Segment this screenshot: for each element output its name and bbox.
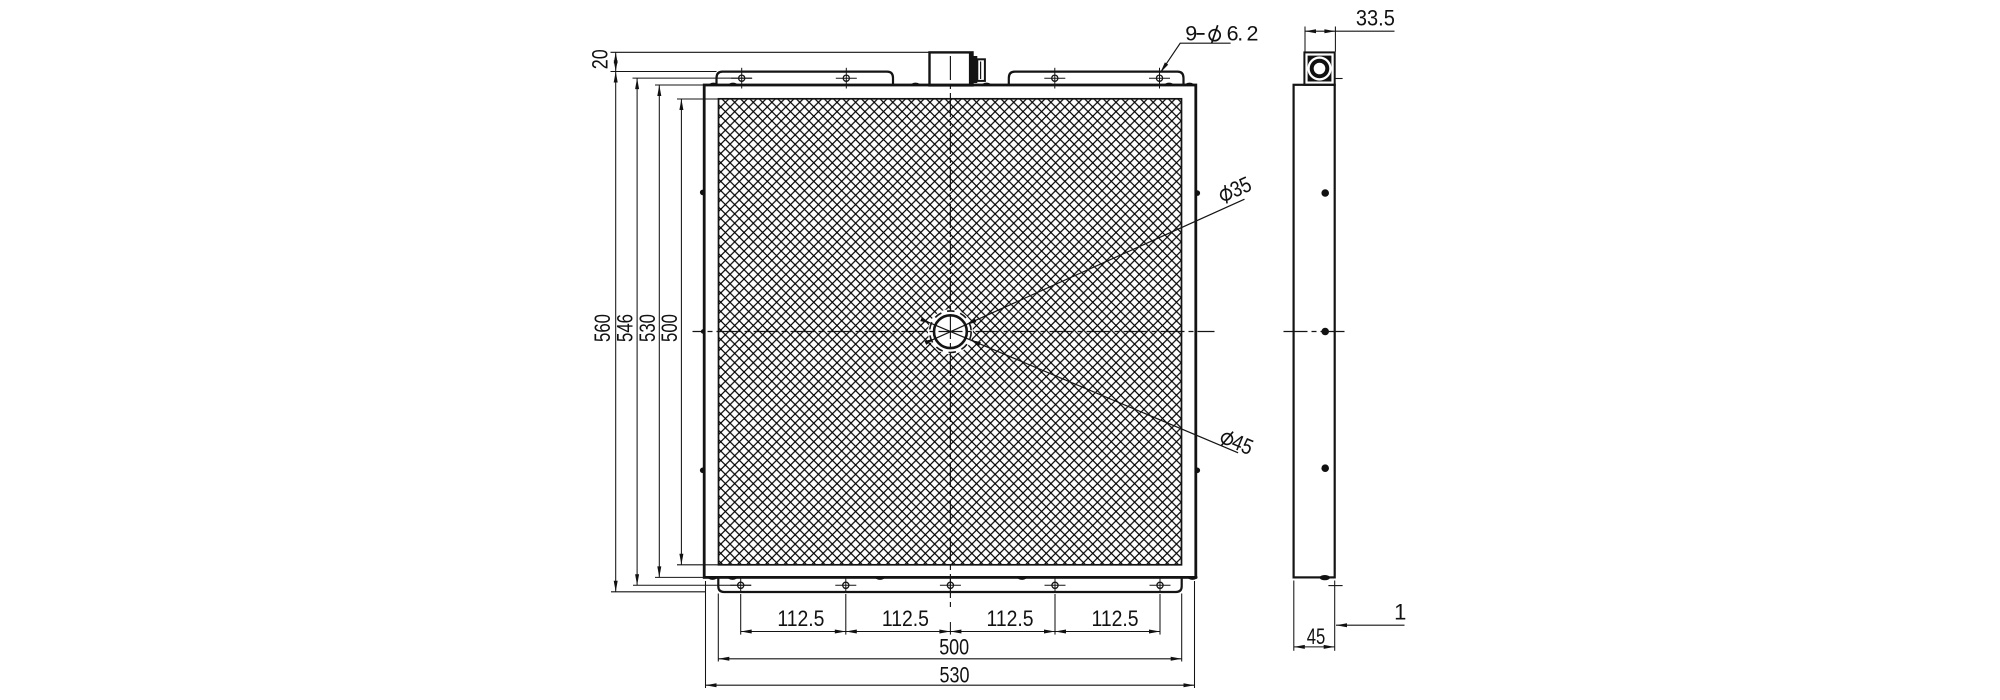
- svg-text:9: 9: [1185, 22, 1197, 46]
- svg-text:560: 560: [590, 314, 615, 342]
- svg-text:112.5: 112.5: [882, 606, 929, 631]
- svg-text:2: 2: [1247, 22, 1259, 46]
- svg-text:530: 530: [940, 663, 970, 688]
- svg-text:112.5: 112.5: [1092, 606, 1139, 631]
- svg-text:20: 20: [588, 49, 613, 69]
- svg-text:1: 1: [1394, 599, 1406, 624]
- svg-text:500: 500: [939, 634, 969, 659]
- svg-text:112.5: 112.5: [777, 606, 824, 631]
- svg-text:33.5: 33.5: [1356, 6, 1395, 31]
- svg-text:112.5: 112.5: [987, 606, 1034, 631]
- svg-text:500: 500: [657, 314, 682, 342]
- svg-text:.: .: [1237, 22, 1243, 46]
- svg-text:45: 45: [1307, 624, 1326, 649]
- svg-text:546: 546: [613, 314, 638, 342]
